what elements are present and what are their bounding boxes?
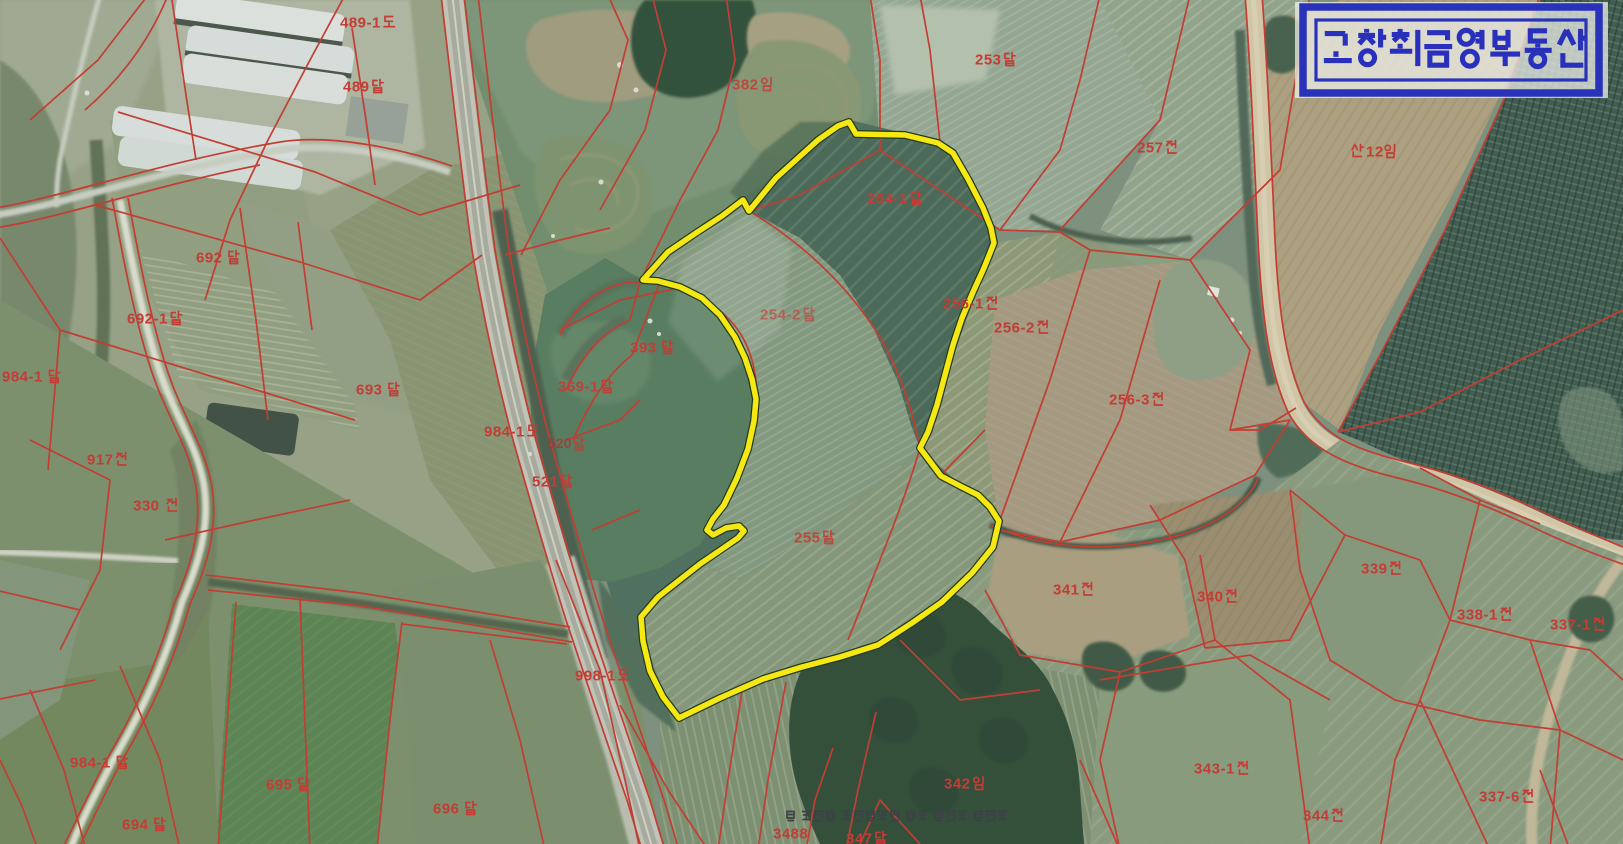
svg-text:256-2: 256-2 xyxy=(994,320,1035,337)
svg-text:254-2: 254-2 xyxy=(760,307,801,324)
svg-text:256-1: 256-1 xyxy=(943,296,984,313)
svg-text:347: 347 xyxy=(846,831,873,844)
svg-text:382: 382 xyxy=(732,77,759,94)
svg-text:696: 696 xyxy=(433,801,460,818)
svg-text:12: 12 xyxy=(1366,144,1384,161)
svg-text:337-6: 337-6 xyxy=(1479,789,1520,806)
svg-text:520: 520 xyxy=(548,435,572,451)
svg-text:330: 330 xyxy=(133,498,160,515)
svg-text:984-1: 984-1 xyxy=(70,755,111,772)
svg-text:340: 340 xyxy=(1197,589,1224,606)
svg-text:984-1: 984-1 xyxy=(2,369,43,386)
svg-text:489: 489 xyxy=(343,79,370,96)
svg-text:693: 693 xyxy=(356,382,383,399)
svg-text:342: 342 xyxy=(944,776,971,793)
svg-text:343-1: 343-1 xyxy=(1194,761,1235,778)
svg-text:339: 339 xyxy=(1361,561,1388,578)
svg-text:369-1: 369-1 xyxy=(558,379,599,396)
svg-text:984-1: 984-1 xyxy=(484,424,525,441)
svg-text:255: 255 xyxy=(794,530,821,547)
svg-text:344: 344 xyxy=(1303,808,1330,825)
svg-text:694: 694 xyxy=(122,817,149,834)
svg-text:341: 341 xyxy=(1053,582,1080,599)
svg-text:254-1: 254-1 xyxy=(867,191,908,208)
svg-text:3488: 3488 xyxy=(773,826,808,843)
svg-text:917: 917 xyxy=(87,452,114,469)
svg-text:393: 393 xyxy=(630,340,657,357)
svg-text:695: 695 xyxy=(266,777,293,794)
svg-text:338-1: 338-1 xyxy=(1457,607,1498,624)
svg-text:521: 521 xyxy=(532,474,559,491)
svg-text:337-1: 337-1 xyxy=(1550,617,1591,634)
svg-text:253: 253 xyxy=(975,52,1002,69)
svg-text:257: 257 xyxy=(1137,140,1164,157)
svg-text:692: 692 xyxy=(196,250,223,267)
svg-text:256-3: 256-3 xyxy=(1109,392,1150,409)
svg-text:692-1: 692-1 xyxy=(127,311,168,328)
svg-text:489-1: 489-1 xyxy=(340,15,381,32)
svg-text:998-1: 998-1 xyxy=(575,668,616,685)
